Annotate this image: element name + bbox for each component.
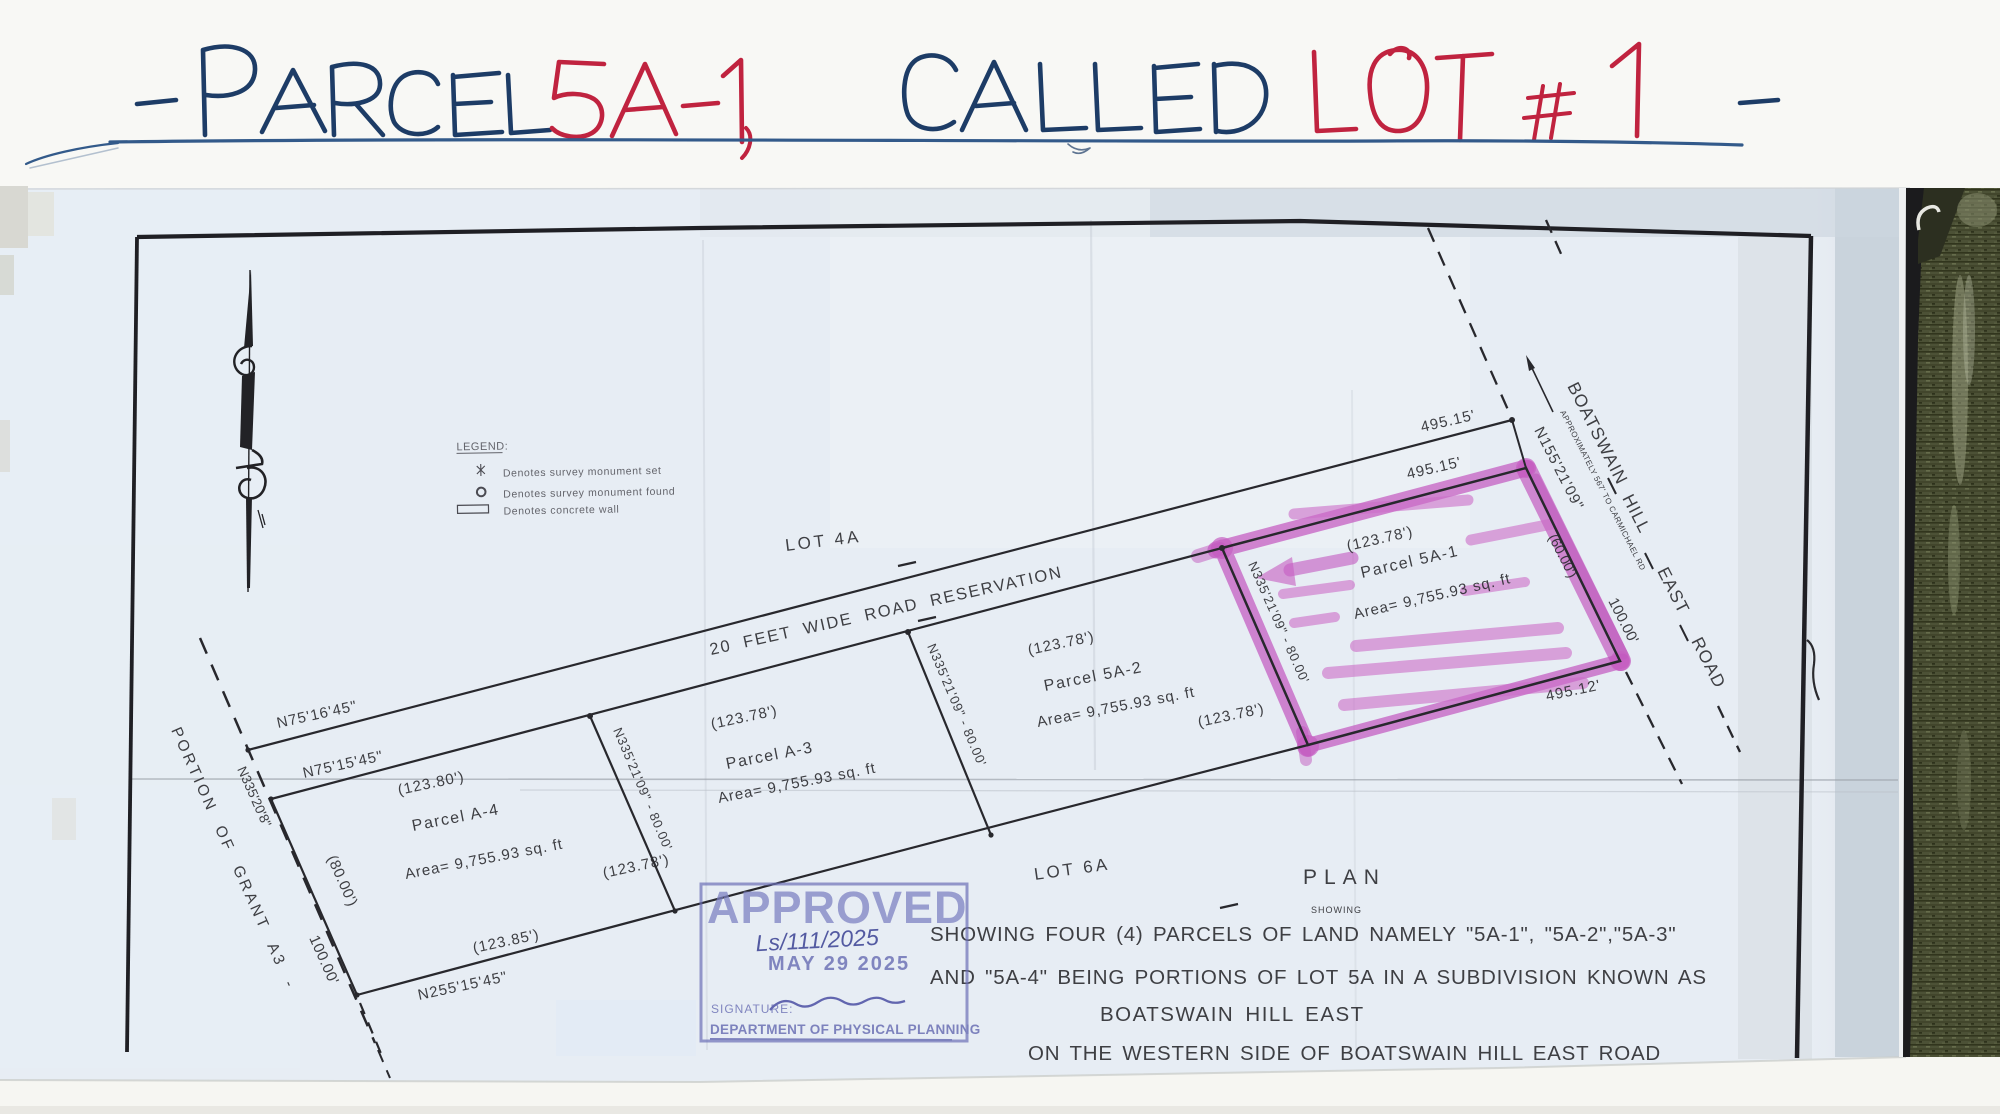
svg-text:AND "5A-4" BEING PORTIONS OF L: AND "5A-4" BEING PORTIONS OF LOT 5A IN A… <box>930 966 1707 989</box>
svg-text:ON THE WESTERN SIDE OF BOATSWA: ON THE WESTERN SIDE OF BOATSWAIN HILL EA… <box>1028 1042 1661 1065</box>
svg-text:LEGEND:: LEGEND: <box>456 441 508 454</box>
svg-text:SHOWING: SHOWING <box>1311 905 1362 915</box>
svg-text:Denotes concrete wall: Denotes concrete wall <box>503 504 619 518</box>
svg-text:BOATSWAIN HILL EAST: BOATSWAIN HILL EAST <box>1100 1003 1365 1026</box>
svg-text:PLAN: PLAN <box>1303 866 1386 889</box>
svg-text:SHOWING FOUR (4) PARCELS OF LA: SHOWING FOUR (4) PARCELS OF LAND NAMELY … <box>930 923 1676 946</box>
svg-text:SIGNATURE:: SIGNATURE: <box>711 1002 793 1016</box>
svg-text:DEPARTMENT OF PHYSICAL PLANNIN: DEPARTMENT OF PHYSICAL PLANNING <box>710 1022 981 1037</box>
svg-text:MAY 29 2025: MAY 29 2025 <box>768 953 910 975</box>
